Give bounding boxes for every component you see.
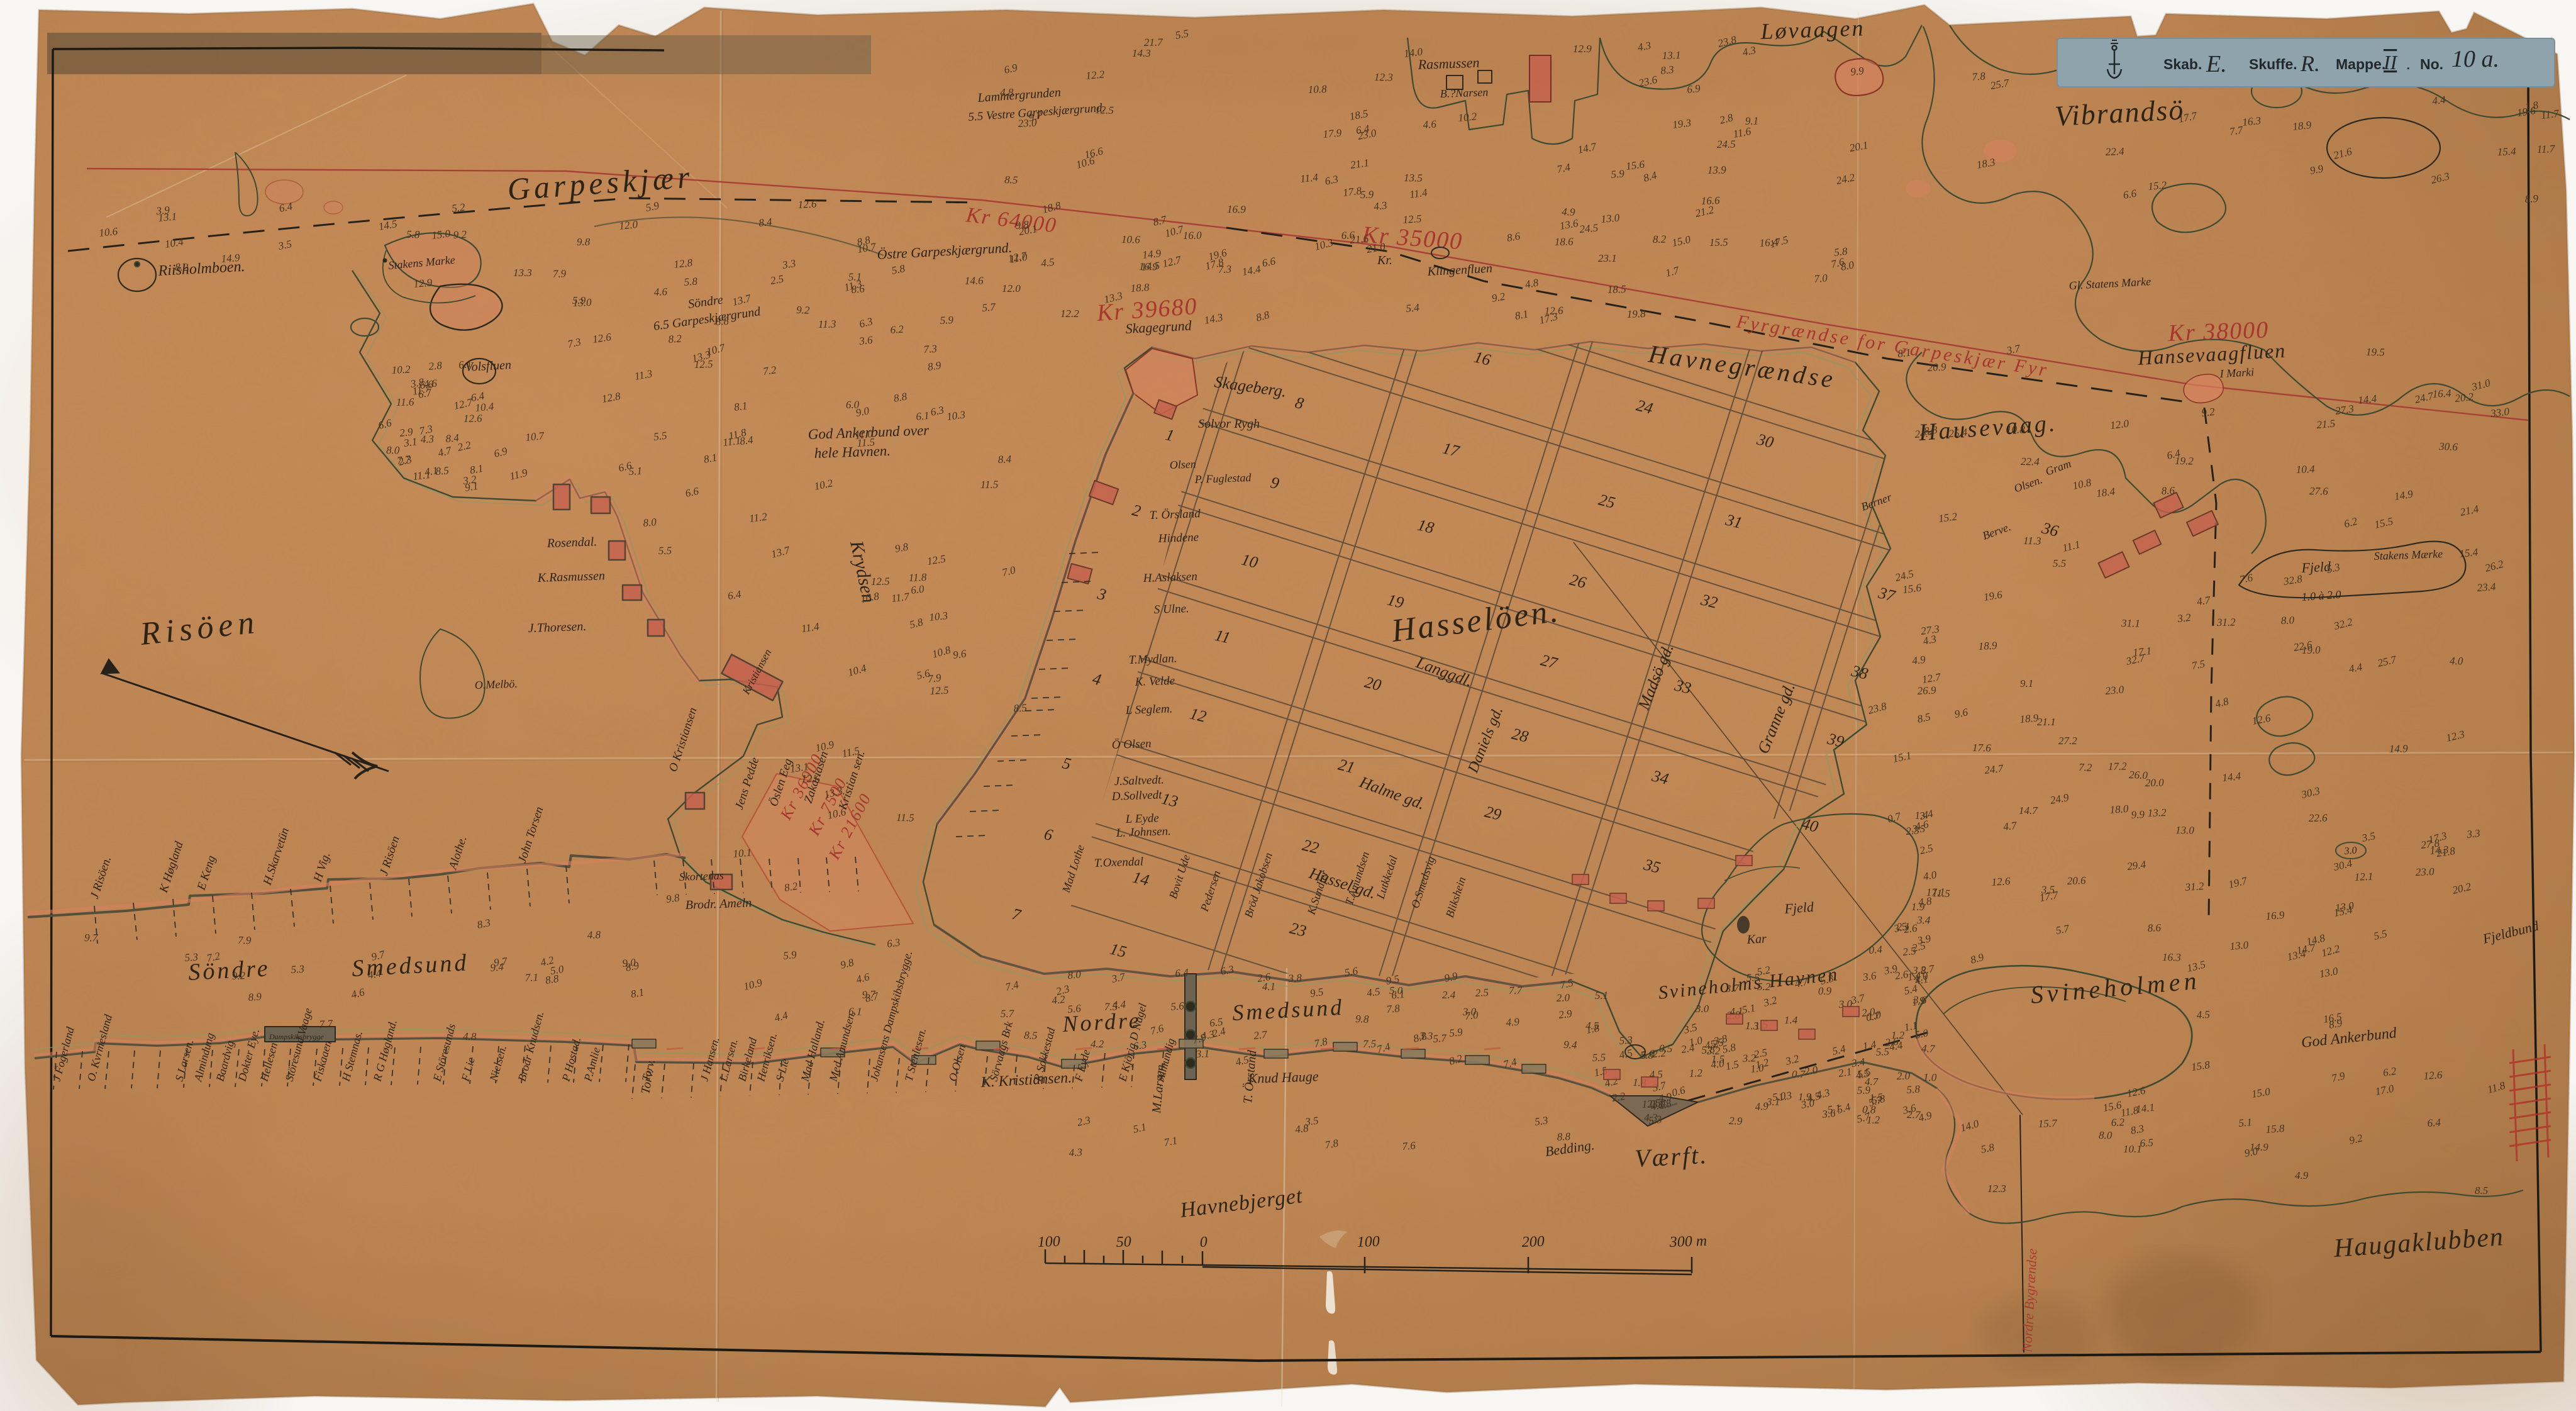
svg-text:20.9: 20.9 bbox=[1927, 360, 1946, 374]
svg-text:Hindene: Hindene bbox=[1157, 531, 1199, 545]
svg-text:13.3: 13.3 bbox=[513, 267, 532, 279]
svg-text:5.9: 5.9 bbox=[940, 314, 954, 326]
svg-text:11.1: 11.1 bbox=[722, 435, 741, 449]
svg-text:4.6: 4.6 bbox=[653, 286, 668, 298]
svg-text:18.5: 18.5 bbox=[1607, 283, 1626, 296]
svg-text:12.9: 12.9 bbox=[1573, 43, 1592, 55]
svg-text:8.5: 8.5 bbox=[1004, 174, 1018, 186]
svg-text:12.5: 12.5 bbox=[1095, 104, 1114, 116]
svg-text:20.6: 20.6 bbox=[2067, 874, 2086, 887]
svg-text:16.4: 16.4 bbox=[2432, 387, 2451, 400]
svg-text:5.1: 5.1 bbox=[2238, 1116, 2253, 1129]
svg-text:Løvaagen: Løvaagen bbox=[1760, 15, 1865, 44]
svg-text:29.4: 29.4 bbox=[2126, 858, 2146, 873]
svg-text:D.Sollvedt: D.Sollvedt bbox=[1111, 788, 1162, 803]
svg-text:5.9: 5.9 bbox=[1448, 1026, 1463, 1039]
svg-text:7.6: 7.6 bbox=[1402, 1139, 1416, 1152]
svg-text:5.3: 5.3 bbox=[291, 963, 305, 976]
svg-text:16.4: 16.4 bbox=[1759, 236, 1779, 249]
svg-text:5.7: 5.7 bbox=[1001, 1008, 1015, 1020]
svg-text:16.9: 16.9 bbox=[1227, 203, 1246, 216]
svg-text:2.8: 2.8 bbox=[428, 359, 443, 372]
svg-text:3.0: 3.0 bbox=[2343, 845, 2357, 857]
svg-text:6.5: 6.5 bbox=[2140, 1137, 2154, 1149]
svg-text:13.5: 13.5 bbox=[1404, 172, 1423, 184]
svg-text:5.8: 5.8 bbox=[1640, 1049, 1654, 1061]
svg-text:4.0: 4.0 bbox=[2450, 655, 2463, 667]
svg-text:9.7: 9.7 bbox=[862, 988, 877, 1001]
svg-text:7.1: 7.1 bbox=[1163, 1134, 1178, 1149]
svg-text:9.8: 9.8 bbox=[894, 540, 909, 554]
svg-text:3.4: 3.4 bbox=[1916, 914, 1931, 926]
svg-text:3.3: 3.3 bbox=[1419, 1030, 1433, 1042]
svg-text:8.8: 8.8 bbox=[545, 973, 560, 986]
svg-text:7.9: 7.9 bbox=[238, 934, 252, 946]
svg-text:24.4: 24.4 bbox=[1914, 427, 1935, 440]
svg-text:5.7: 5.7 bbox=[1433, 1032, 1448, 1045]
svg-text:13.0: 13.0 bbox=[1601, 211, 1621, 225]
svg-text:1.4: 1.4 bbox=[1914, 809, 1929, 822]
svg-text:25.4: 25.4 bbox=[1948, 426, 1968, 440]
svg-text:7.5: 7.5 bbox=[1363, 1038, 1377, 1050]
svg-text:18.8: 18.8 bbox=[1130, 281, 1150, 294]
svg-text:9.0: 9.0 bbox=[622, 956, 636, 969]
svg-text:L Seglem.: L Seglem. bbox=[1124, 702, 1172, 717]
svg-text:Fjeld: Fjeld bbox=[1784, 899, 1815, 917]
svg-text:8.5: 8.5 bbox=[2475, 1185, 2488, 1196]
svg-text:27.2: 27.2 bbox=[2058, 735, 2077, 747]
svg-text:27.6: 27.6 bbox=[2309, 485, 2329, 498]
svg-text:L. Johnsen.: L. Johnsen. bbox=[1115, 825, 1171, 840]
svg-text:11.2: 11.2 bbox=[748, 511, 768, 525]
svg-text:1.4: 1.4 bbox=[1784, 1014, 1798, 1026]
svg-text:6.9: 6.9 bbox=[1686, 82, 1701, 96]
svg-text:6.0: 6.0 bbox=[910, 583, 925, 596]
svg-text:7.7: 7.7 bbox=[1509, 984, 1523, 996]
svg-text:17.9: 17.9 bbox=[1323, 126, 1343, 140]
svg-text:7.8: 7.8 bbox=[1972, 70, 1986, 83]
svg-text:4.9: 4.9 bbox=[1911, 654, 1926, 667]
svg-text:7.9: 7.9 bbox=[552, 267, 566, 280]
svg-text:11.4: 11.4 bbox=[1299, 171, 1319, 185]
svg-text:6.6: 6.6 bbox=[2122, 187, 2138, 201]
svg-text:23.0: 23.0 bbox=[1018, 116, 1037, 130]
svg-text:4.3: 4.3 bbox=[1373, 199, 1387, 213]
svg-text:hele Havnen.: hele Havnen. bbox=[814, 443, 891, 461]
svg-text:6.4: 6.4 bbox=[2427, 1117, 2441, 1129]
svg-text:14.4: 14.4 bbox=[2357, 393, 2377, 406]
svg-text:10.6: 10.6 bbox=[98, 225, 118, 239]
svg-text:4.0: 4.0 bbox=[1923, 869, 1938, 883]
svg-text:3.5: 3.5 bbox=[1304, 1115, 1319, 1129]
svg-text:14.0: 14.0 bbox=[1403, 45, 1423, 60]
svg-text:7.7: 7.7 bbox=[319, 1017, 334, 1030]
svg-text:5.1: 5.1 bbox=[1595, 990, 1609, 1001]
svg-text:12.6: 12.6 bbox=[2423, 1069, 2443, 1082]
svg-text:13.1: 13.1 bbox=[1662, 49, 1680, 62]
svg-text:1.4: 1.4 bbox=[1907, 969, 1922, 983]
svg-text:4.5: 4.5 bbox=[1585, 1020, 1599, 1032]
svg-text:9.2: 9.2 bbox=[231, 969, 245, 982]
svg-text:11.3: 11.3 bbox=[818, 318, 836, 330]
svg-text:4.9: 4.9 bbox=[2295, 1169, 2309, 1181]
svg-text:5.8: 5.8 bbox=[1871, 1093, 1886, 1107]
svg-text:100: 100 bbox=[1357, 1234, 1380, 1251]
svg-text:4.5: 4.5 bbox=[1366, 986, 1380, 999]
svg-text:11.5: 11.5 bbox=[980, 479, 999, 491]
svg-text:14.9: 14.9 bbox=[221, 252, 241, 265]
svg-text:15.8: 15.8 bbox=[2265, 1122, 2285, 1135]
svg-text:16.3: 16.3 bbox=[2162, 951, 2181, 964]
svg-text:18.9: 18.9 bbox=[1978, 639, 1997, 652]
svg-text:T. Örsland: T. Örsland bbox=[1149, 507, 1201, 522]
svg-text:12.6: 12.6 bbox=[1991, 875, 2011, 888]
svg-text:16.0: 16.0 bbox=[1183, 229, 1202, 242]
svg-text:24.7: 24.7 bbox=[1984, 762, 2004, 776]
svg-text:12.8: 12.8 bbox=[673, 257, 693, 270]
svg-text:3.7: 3.7 bbox=[1724, 982, 1740, 995]
svg-text:6.2: 6.2 bbox=[2382, 1065, 2397, 1079]
svg-text:Mappe.: Mappe. bbox=[2336, 56, 2385, 72]
svg-text:23.4: 23.4 bbox=[2477, 581, 2497, 594]
svg-text:8.4: 8.4 bbox=[739, 433, 754, 447]
svg-text:3.0: 3.0 bbox=[1695, 1003, 1709, 1015]
svg-text:9.7: 9.7 bbox=[493, 955, 509, 969]
svg-text:12.2: 12.2 bbox=[1085, 68, 1106, 82]
svg-text:22.4: 22.4 bbox=[2021, 455, 2040, 468]
svg-text:0.5: 0.5 bbox=[1659, 1042, 1673, 1054]
svg-text:5.3: 5.3 bbox=[1619, 1034, 1633, 1047]
svg-text:3.5: 3.5 bbox=[1911, 823, 1925, 835]
svg-text:0.9: 0.9 bbox=[1818, 985, 1832, 997]
svg-text:Skortenas: Skortenas bbox=[679, 869, 724, 883]
svg-text:4.3: 4.3 bbox=[1636, 40, 1652, 53]
svg-text:1.4: 1.4 bbox=[1862, 1038, 1877, 1052]
svg-text:15.6: 15.6 bbox=[1902, 581, 1922, 596]
svg-text:4.8: 4.8 bbox=[463, 1030, 477, 1042]
svg-text:2.0: 2.0 bbox=[1556, 991, 1570, 1004]
svg-text:8.3: 8.3 bbox=[2129, 1122, 2145, 1137]
svg-text:7.6: 7.6 bbox=[2238, 571, 2254, 585]
svg-text:11.7: 11.7 bbox=[891, 590, 911, 605]
svg-text:B.?Narsen: B.?Narsen bbox=[1440, 86, 1488, 100]
svg-text:6.3: 6.3 bbox=[1133, 1039, 1148, 1052]
svg-text:2.1: 2.1 bbox=[1838, 1066, 1853, 1079]
svg-text:7.0: 7.0 bbox=[1464, 1008, 1479, 1022]
svg-text:13.9: 13.9 bbox=[1707, 164, 1727, 176]
svg-text:4.4: 4.4 bbox=[2431, 94, 2446, 107]
svg-text:14.4: 14.4 bbox=[2221, 770, 2241, 784]
svg-text:Vibrandsö: Vibrandsö bbox=[2054, 93, 2185, 132]
svg-text:3.8: 3.8 bbox=[1287, 972, 1302, 985]
svg-text:9.8: 9.8 bbox=[665, 891, 680, 905]
svg-text:10.1: 10.1 bbox=[2123, 1143, 2142, 1155]
svg-text:8.2: 8.2 bbox=[784, 880, 799, 894]
svg-text:17.6: 17.6 bbox=[1972, 742, 1992, 754]
svg-text:7.8: 7.8 bbox=[1386, 1002, 1401, 1015]
svg-text:22.6: 22.6 bbox=[2309, 811, 2328, 824]
svg-text:9.8: 9.8 bbox=[1355, 1013, 1369, 1025]
svg-text:8.8: 8.8 bbox=[715, 315, 730, 328]
svg-text:11.5: 11.5 bbox=[857, 436, 875, 449]
svg-text:Skab.: Skab. bbox=[2163, 56, 2202, 72]
svg-text:9.6: 9.6 bbox=[952, 647, 967, 661]
svg-text:9.2: 9.2 bbox=[453, 228, 467, 241]
svg-text:5.3: 5.3 bbox=[184, 951, 199, 964]
svg-text:Olsen: Olsen bbox=[1169, 458, 1196, 471]
svg-text:8.0: 8.0 bbox=[386, 444, 400, 456]
svg-text:11.6: 11.6 bbox=[396, 396, 414, 408]
svg-text:15.4: 15.4 bbox=[2458, 546, 2479, 560]
svg-text:13.0: 13.0 bbox=[2229, 939, 2250, 952]
svg-text:15.5: 15.5 bbox=[1709, 236, 1728, 248]
svg-text:4.3: 4.3 bbox=[420, 433, 434, 445]
svg-text:8.5: 8.5 bbox=[1013, 701, 1028, 715]
svg-text:12.2: 12.2 bbox=[1060, 308, 1079, 320]
svg-text:Söndre: Söndre bbox=[187, 955, 270, 986]
svg-text:2.6: 2.6 bbox=[1894, 968, 1909, 982]
svg-text:3.9: 3.9 bbox=[155, 204, 170, 217]
svg-text:4.9: 4.9 bbox=[1562, 206, 1575, 218]
svg-text:5.9: 5.9 bbox=[1360, 189, 1374, 201]
svg-text:5.2: 5.2 bbox=[1757, 981, 1771, 993]
svg-text:2.5: 2.5 bbox=[1902, 945, 1916, 958]
svg-text:14.6: 14.6 bbox=[965, 274, 984, 287]
svg-text:6.3: 6.3 bbox=[886, 936, 901, 950]
svg-text:18.0: 18.0 bbox=[2109, 803, 2129, 816]
svg-text:24.5: 24.5 bbox=[1579, 221, 1599, 235]
svg-text:2.0: 2.0 bbox=[1804, 1064, 1819, 1078]
svg-text:4.3: 4.3 bbox=[1644, 1112, 1658, 1124]
svg-text:8.5: 8.5 bbox=[1024, 1029, 1038, 1042]
svg-text:15.2: 15.2 bbox=[2148, 179, 2168, 192]
svg-text:200: 200 bbox=[1521, 1234, 1545, 1251]
svg-text:8.6: 8.6 bbox=[2161, 484, 2175, 497]
svg-text:12.5: 12.5 bbox=[930, 684, 949, 697]
svg-text:J.Thoresen.: J.Thoresen. bbox=[528, 620, 586, 635]
svg-text:26.9: 26.9 bbox=[1917, 684, 1936, 697]
svg-text:3.6: 3.6 bbox=[858, 333, 874, 347]
svg-text:2.4: 2.4 bbox=[1680, 1042, 1696, 1056]
svg-text:31.2: 31.2 bbox=[2184, 880, 2204, 893]
svg-text:11.3: 11.3 bbox=[2023, 535, 2041, 547]
svg-text:H.Aslaksen: H.Aslaksen bbox=[1142, 570, 1197, 585]
svg-text:23.0: 23.0 bbox=[2415, 866, 2434, 878]
svg-text:10.2: 10.2 bbox=[1458, 110, 1478, 124]
svg-text:2.6: 2.6 bbox=[1257, 971, 1272, 984]
svg-text:6.2: 6.2 bbox=[890, 323, 904, 336]
svg-text:2.2: 2.2 bbox=[1611, 1090, 1626, 1104]
svg-text:2.9: 2.9 bbox=[1558, 1007, 1573, 1021]
svg-text:18.9: 18.9 bbox=[2019, 711, 2040, 725]
svg-text:21.1: 21.1 bbox=[2037, 716, 2056, 728]
svg-text:8.9: 8.9 bbox=[2524, 192, 2539, 205]
svg-text:9.7: 9.7 bbox=[84, 932, 99, 944]
svg-text:19.0: 19.0 bbox=[2302, 644, 2321, 656]
svg-text:II: II bbox=[2383, 51, 2398, 74]
svg-text:6.1: 6.1 bbox=[1391, 988, 1405, 1001]
svg-text:8.6: 8.6 bbox=[1506, 230, 1521, 243]
svg-text:18.4: 18.4 bbox=[2096, 485, 2116, 499]
svg-text:8.0: 8.0 bbox=[643, 516, 657, 529]
svg-text:14.5: 14.5 bbox=[1141, 259, 1160, 273]
svg-text:8.8: 8.8 bbox=[892, 390, 908, 404]
svg-text:4.3: 4.3 bbox=[1069, 1146, 1082, 1159]
svg-text:1.5: 1.5 bbox=[1711, 1053, 1724, 1065]
svg-text:8.2: 8.2 bbox=[1653, 233, 1667, 245]
svg-text:L Eyde: L Eyde bbox=[1124, 811, 1159, 826]
svg-text:12.0: 12.0 bbox=[618, 218, 638, 232]
svg-text:5.9: 5.9 bbox=[572, 294, 586, 306]
svg-text:4.8: 4.8 bbox=[1000, 86, 1014, 98]
svg-text:2.0: 2.0 bbox=[1861, 1005, 1876, 1019]
svg-text:21.6: 21.6 bbox=[1350, 232, 1370, 246]
svg-text:6.1: 6.1 bbox=[848, 1005, 862, 1018]
svg-text:4.7: 4.7 bbox=[1921, 1042, 1936, 1055]
svg-text:3.3: 3.3 bbox=[2465, 827, 2480, 840]
svg-text:15.7: 15.7 bbox=[2038, 1117, 2058, 1130]
svg-text:5.2: 5.2 bbox=[451, 201, 466, 215]
svg-text:P. Fuglestad: P. Fuglestad bbox=[1194, 471, 1252, 486]
svg-text:8.0: 8.0 bbox=[2280, 614, 2294, 627]
svg-text:5.6: 5.6 bbox=[1343, 964, 1359, 978]
svg-text:8.2: 8.2 bbox=[668, 333, 682, 345]
svg-text:31.1: 31.1 bbox=[2121, 617, 2140, 630]
svg-text:5.8: 5.8 bbox=[1906, 1083, 1921, 1096]
svg-text:3.6: 3.6 bbox=[1862, 969, 1877, 983]
svg-text:Kr 38000: Kr 38000 bbox=[2167, 316, 2270, 347]
svg-text:Ö Olsen: Ö Olsen bbox=[1111, 737, 1152, 752]
svg-text:5.1: 5.1 bbox=[848, 270, 862, 283]
svg-text:3.8: 3.8 bbox=[409, 376, 425, 390]
svg-text:5.6: 5.6 bbox=[1170, 1000, 1185, 1013]
svg-text:8.4: 8.4 bbox=[758, 216, 773, 229]
svg-text:3.3: 3.3 bbox=[781, 257, 797, 271]
svg-text:2.5: 2.5 bbox=[1646, 1096, 1662, 1110]
svg-text:4.7: 4.7 bbox=[1865, 1076, 1879, 1088]
svg-text:8.9: 8.9 bbox=[248, 991, 262, 1003]
svg-text:T.Oxendal: T.Oxendal bbox=[1094, 855, 1143, 870]
svg-text:6.4: 6.4 bbox=[727, 588, 742, 602]
svg-text:12.3: 12.3 bbox=[1987, 1183, 2006, 1195]
svg-text:11.7: 11.7 bbox=[2536, 143, 2556, 155]
svg-text:8.4: 8.4 bbox=[445, 432, 460, 445]
svg-text:13.0: 13.0 bbox=[2175, 824, 2195, 837]
svg-text:5.5: 5.5 bbox=[1174, 27, 1189, 42]
svg-text:K.Rasmussen: K.Rasmussen bbox=[536, 569, 605, 585]
svg-text:8.6: 8.6 bbox=[851, 282, 865, 296]
svg-text:22.4: 22.4 bbox=[2105, 145, 2124, 158]
svg-text:17.2: 17.2 bbox=[2108, 760, 2128, 772]
svg-text:10.3: 10.3 bbox=[946, 408, 966, 422]
svg-text:Stakens Mærke: Stakens Mærke bbox=[2373, 547, 2443, 562]
svg-text:9.2: 9.2 bbox=[1491, 290, 1506, 304]
svg-text:9.2: 9.2 bbox=[796, 304, 810, 316]
svg-text:17.8: 17.8 bbox=[1342, 184, 1362, 199]
svg-text:8.4: 8.4 bbox=[997, 453, 1011, 466]
svg-text:4.9: 4.9 bbox=[1755, 1100, 1769, 1113]
svg-text:4.8: 4.8 bbox=[1524, 276, 1540, 290]
svg-text:11.5: 11.5 bbox=[896, 811, 914, 823]
svg-text:8.6: 8.6 bbox=[2147, 922, 2162, 934]
svg-text:15.2: 15.2 bbox=[1938, 510, 1958, 525]
svg-text:Rosendal.: Rosendal. bbox=[546, 535, 597, 550]
svg-text:33.0: 33.0 bbox=[2489, 405, 2510, 420]
svg-text:10.1: 10.1 bbox=[733, 846, 752, 860]
svg-text:8.1: 8.1 bbox=[702, 452, 718, 466]
svg-text:I Marki: I Marki bbox=[2219, 365, 2254, 380]
svg-text:12.6: 12.6 bbox=[464, 412, 483, 425]
svg-text:100: 100 bbox=[1037, 1234, 1060, 1251]
svg-text:4.7: 4.7 bbox=[2002, 819, 2018, 833]
svg-text:10.6: 10.6 bbox=[1121, 233, 1141, 246]
svg-text:12.5: 12.5 bbox=[871, 575, 890, 588]
svg-text:Kar: Kar bbox=[1746, 932, 1767, 947]
svg-text:10.4: 10.4 bbox=[2296, 463, 2315, 476]
svg-text:12.6: 12.6 bbox=[797, 198, 817, 211]
svg-text:7.2: 7.2 bbox=[762, 364, 777, 377]
svg-text:5.9: 5.9 bbox=[1611, 167, 1625, 181]
svg-text:8.1: 8.1 bbox=[1514, 308, 1529, 322]
svg-text:5.1: 5.1 bbox=[628, 465, 642, 477]
svg-text:1.9: 1.9 bbox=[1798, 1091, 1812, 1103]
svg-text:K. Velde: K. Velde bbox=[1134, 674, 1175, 689]
svg-text:10.7: 10.7 bbox=[525, 430, 545, 443]
svg-text:.: . bbox=[2406, 55, 2411, 73]
svg-text:6.1: 6.1 bbox=[915, 410, 930, 423]
svg-text:Skuffe.: Skuffe. bbox=[2249, 56, 2297, 72]
svg-text:300 m: 300 m bbox=[1668, 1233, 1707, 1251]
svg-text:12.3: 12.3 bbox=[1374, 71, 1393, 84]
svg-text:10.2: 10.2 bbox=[391, 363, 411, 376]
svg-text:7.0: 7.0 bbox=[1814, 272, 1828, 285]
svg-text:5.5: 5.5 bbox=[653, 430, 667, 443]
svg-text:1.0: 1.0 bbox=[1923, 1071, 1937, 1083]
svg-text:31.2: 31.2 bbox=[2216, 616, 2236, 628]
svg-text:5.8: 5.8 bbox=[406, 228, 420, 240]
svg-text:24.5: 24.5 bbox=[1717, 138, 1736, 150]
svg-text:2.9: 2.9 bbox=[399, 425, 414, 439]
svg-text:11.8: 11.8 bbox=[908, 571, 927, 584]
svg-text:4.5: 4.5 bbox=[2196, 1008, 2210, 1021]
svg-text:4.5: 4.5 bbox=[1040, 256, 1055, 269]
svg-text:11.4: 11.4 bbox=[1409, 186, 1428, 201]
svg-text:12.5: 12.5 bbox=[1402, 213, 1422, 226]
svg-text:9.2: 9.2 bbox=[2201, 406, 2216, 419]
svg-text:6.1: 6.1 bbox=[458, 357, 473, 371]
svg-text:4.9: 4.9 bbox=[1506, 1016, 1520, 1029]
svg-text:8.2: 8.2 bbox=[175, 261, 189, 273]
svg-text:3.4: 3.4 bbox=[1850, 1056, 1866, 1069]
svg-text:5.5: 5.5 bbox=[658, 545, 672, 557]
svg-text:J.Saltvedt.: J.Saltvedt. bbox=[1114, 773, 1164, 788]
svg-text:11.1: 11.1 bbox=[412, 469, 431, 482]
svg-text:10.8: 10.8 bbox=[2006, 423, 2026, 436]
svg-text:10.8: 10.8 bbox=[1307, 83, 1327, 96]
svg-text:5.5: 5.5 bbox=[2053, 557, 2066, 569]
svg-text:2.6: 2.6 bbox=[1884, 1035, 1899, 1049]
svg-text:8.8: 8.8 bbox=[1557, 1130, 1571, 1143]
svg-text:8.9: 8.9 bbox=[927, 359, 942, 373]
svg-text:7.2: 7.2 bbox=[2079, 761, 2092, 774]
svg-text:9.9: 9.9 bbox=[2131, 808, 2145, 821]
svg-text:12.9: 12.9 bbox=[413, 276, 433, 290]
svg-text:21.5: 21.5 bbox=[2316, 417, 2336, 431]
svg-text:19.8: 19.8 bbox=[1626, 308, 1646, 320]
svg-text:Brodr. Ameln: Brodr. Ameln bbox=[685, 896, 752, 912]
svg-text:4.8: 4.8 bbox=[587, 929, 601, 941]
svg-text:2.0: 2.0 bbox=[1897, 1070, 1911, 1082]
